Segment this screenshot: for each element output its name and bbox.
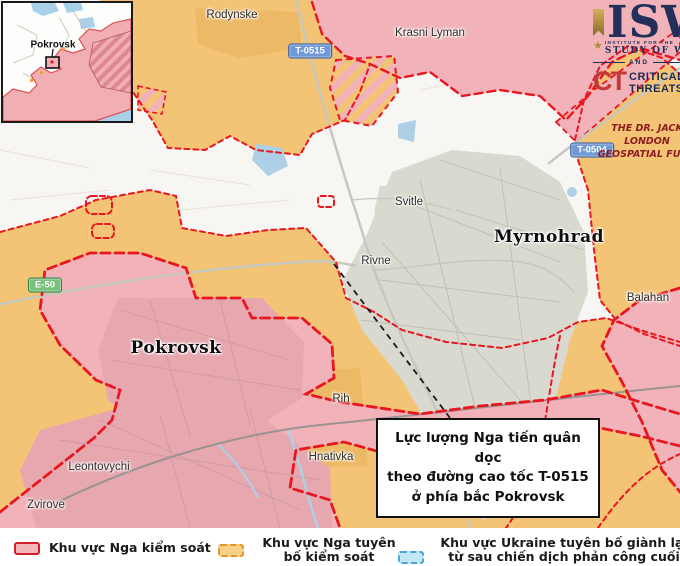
annotation-line-2: theo đường cao tốc T-0515 (384, 468, 592, 488)
fund-line2: GEOSPATIAL FUND (593, 149, 680, 162)
critical-threats-wordmark: CRITICAL THREATS (629, 69, 680, 96)
road-badge-e-50: E-50 (28, 278, 62, 293)
annotation-callout-box: Lực lượng Nga tiến quân dọc theo đường c… (376, 418, 600, 518)
institute-line2: STUDY OF WAR (605, 46, 680, 56)
isw-ribbon-icon (593, 9, 604, 36)
legend-label-claimed: Khu vực Nga tuyên bố kiểm soát (253, 536, 405, 565)
legend-item-controlled: Khu vực Nga kiểm soát (14, 541, 211, 555)
fund-line1: THE DR. JACK LONDON (593, 123, 680, 149)
inset-canvas (3, 3, 131, 121)
rule-line (593, 62, 625, 63)
legend-bar: Khu vực Nga kiểm soát Khu vực Nga tuyên … (0, 528, 680, 566)
isw-wordmark: ISW (607, 2, 680, 44)
inset-marker-dot (50, 60, 53, 63)
threats-line: THREATS (629, 83, 680, 96)
legend-swatch-claimed (218, 544, 244, 557)
and-label: AND (625, 59, 653, 66)
critical-line: CRITICAL (629, 71, 680, 84)
isw-ct-logo: ISW ★ INSTITUTE FOR THE STUDY OF WAR AND… (593, 2, 680, 162)
screenshot-stage: RodynskeKrasni LymanSvitleMyrnohradRivne… (0, 0, 680, 566)
road-badge-t-0515: T-0515 (288, 44, 332, 59)
legend-label-regained: Khu vực Ukraine tuyên bố giành lại từ sa… (433, 536, 680, 566)
inset-pokrovsk-label: Pokrovsk (30, 40, 75, 51)
ct-logo-mark: CT (593, 69, 625, 96)
annotation-line-3: ở phía bắc Pokrovsk (384, 488, 592, 508)
inset-locator-map: Pokrovsk (1, 1, 133, 123)
legend-item-claimed: Khu vực Nga tuyên bố kiểm soát (218, 536, 405, 565)
annotation-line-1: Lực lượng Nga tiến quân dọc (384, 429, 592, 468)
rule-line (653, 62, 680, 63)
legend-swatch-controlled (14, 542, 40, 555)
geospatial-fund-credit: THE DR. JACK LONDON GEOSPATIAL FUND (593, 123, 680, 161)
legend-swatch-regained (398, 551, 424, 564)
legend-label-controlled: Khu vực Nga kiểm soát (49, 541, 211, 555)
star-icon: ★ (593, 41, 603, 52)
legend-item-regained: Khu vực Ukraine tuyên bố giành lại từ sa… (398, 536, 680, 566)
